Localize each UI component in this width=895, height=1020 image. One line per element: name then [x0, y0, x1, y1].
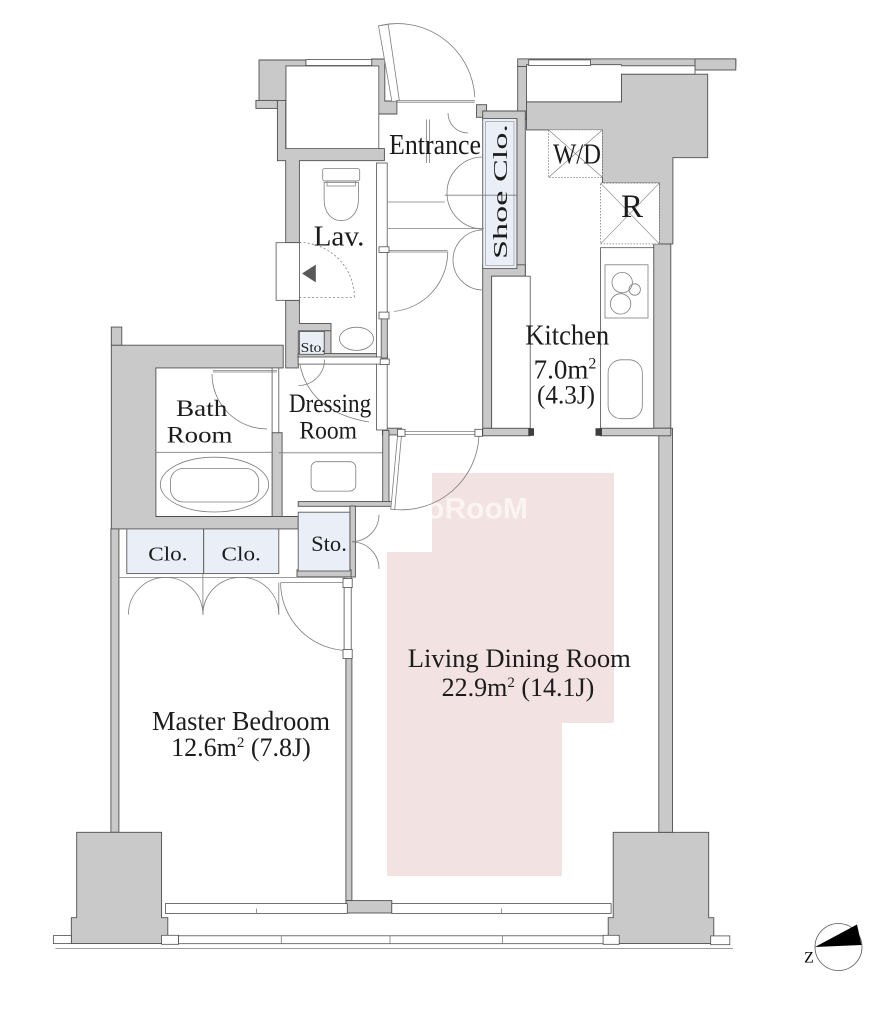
- svg-text:R: R: [621, 189, 643, 225]
- svg-text:Kitchen: Kitchen: [525, 321, 609, 352]
- svg-text:Z: Z: [804, 950, 814, 967]
- svg-text:Sto.: Sto.: [301, 341, 326, 356]
- svg-text:22.9m2 (14.1J): 22.9m2 (14.1J): [442, 673, 595, 702]
- svg-text:Clo.: Clo.: [222, 544, 261, 566]
- svg-text:Living Dining Room: Living Dining Room: [408, 643, 631, 673]
- svg-text:Clo.: Clo.: [148, 544, 187, 566]
- svg-text:Dressing: Dressing: [289, 389, 371, 418]
- svg-text:Master Bedroom: Master Bedroom: [152, 705, 330, 736]
- svg-text:Room: Room: [167, 423, 233, 448]
- svg-text:Lav.: Lav.: [314, 221, 365, 252]
- svg-text:Entrance: Entrance: [389, 129, 481, 161]
- svg-text:(4.3J): (4.3J): [537, 381, 595, 410]
- svg-text:Room: Room: [299, 418, 357, 445]
- svg-text:Shoe Clo.: Shoe Clo.: [491, 124, 512, 259]
- svg-text:Sto.: Sto.: [311, 531, 347, 556]
- svg-text:W/D: W/D: [553, 139, 601, 171]
- svg-text:Bath: Bath: [176, 396, 228, 421]
